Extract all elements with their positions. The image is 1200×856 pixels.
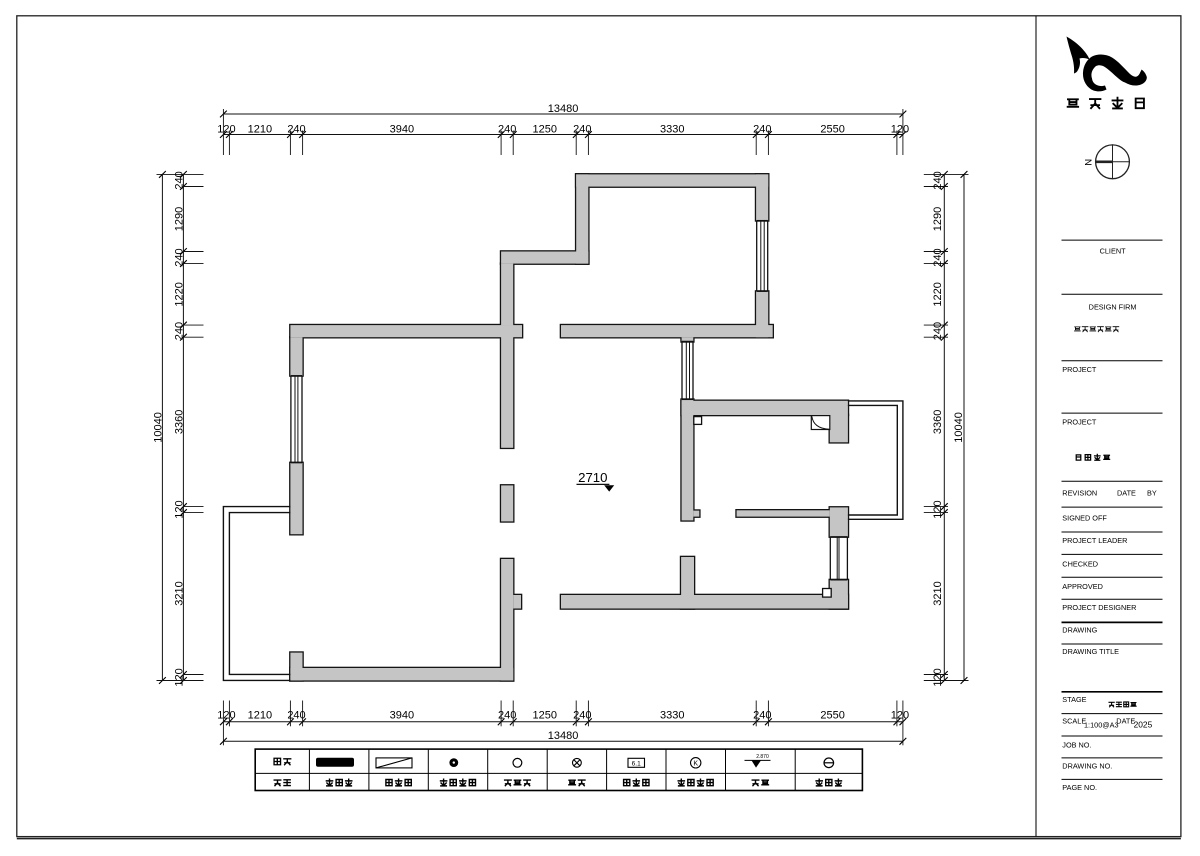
svg-text:120: 120 [217,123,235,135]
svg-text:1250: 1250 [533,710,557,722]
svg-text:120: 120 [891,710,909,722]
svg-text:240: 240 [287,710,305,722]
svg-text:1250: 1250 [533,123,557,135]
svg-text:DRAWING: DRAWING [1062,626,1097,635]
svg-text:DESIGN FIRM: DESIGN FIRM [1089,302,1137,311]
svg-text:CLIENT: CLIENT [1100,247,1126,256]
svg-text:120: 120 [932,500,944,518]
svg-text:240: 240 [173,171,185,189]
svg-text:1210: 1210 [248,123,272,135]
svg-text:1290: 1290 [173,207,185,231]
svg-text:3330: 3330 [660,123,684,135]
svg-text:6.1: 6.1 [632,760,641,767]
svg-text:240: 240 [573,710,591,722]
svg-text:10040: 10040 [953,412,965,443]
svg-text:PROJECT DESIGNER: PROJECT DESIGNER [1062,603,1136,612]
svg-text:13480: 13480 [548,730,579,742]
svg-text:SIGNED OFF: SIGNED OFF [1062,514,1107,523]
svg-text:STAGE: STAGE [1062,695,1086,704]
svg-text:240: 240 [932,171,944,189]
svg-text:PROJECT LEADER: PROJECT LEADER [1062,536,1127,545]
svg-text:3940: 3940 [390,710,414,722]
svg-text:DRAWING NO.: DRAWING NO. [1062,761,1112,770]
svg-text:10040: 10040 [152,412,164,443]
svg-text:3360: 3360 [932,410,944,434]
svg-text:1220: 1220 [173,282,185,306]
svg-text:120: 120 [173,500,185,518]
svg-text:APPROVED: APPROVED [1062,582,1103,591]
svg-text:240: 240 [173,248,185,266]
svg-text:2550: 2550 [820,123,844,135]
svg-text:120: 120 [932,668,944,686]
svg-text:120: 120 [891,123,909,135]
svg-text:CHECKED: CHECKED [1062,559,1098,568]
svg-text:1290: 1290 [932,207,944,231]
svg-text:240: 240 [287,123,305,135]
svg-text:PAGE NO.: PAGE NO. [1062,783,1097,792]
svg-text:240: 240 [753,710,771,722]
svg-text:240: 240 [573,123,591,135]
svg-text:DATE: DATE [1117,489,1136,498]
svg-text:240: 240 [498,710,516,722]
svg-text:240: 240 [498,123,516,135]
svg-text:DATE: DATE [1116,717,1135,726]
svg-text:2025: 2025 [1134,720,1153,730]
svg-text:2550: 2550 [820,710,844,722]
svg-text:13480: 13480 [548,103,579,115]
svg-text:2710: 2710 [578,470,607,485]
svg-text:PROJECT: PROJECT [1062,418,1097,427]
svg-text:SCALE: SCALE [1062,717,1086,726]
svg-text:240: 240 [173,322,185,340]
svg-text:PROJECT: PROJECT [1062,365,1097,374]
svg-text:2.870: 2.870 [756,754,769,760]
svg-text:1:100@A3: 1:100@A3 [1084,720,1119,729]
svg-text:3210: 3210 [173,581,185,605]
svg-text:3210: 3210 [932,581,944,605]
svg-text:1210: 1210 [248,710,272,722]
svg-text:3360: 3360 [173,410,185,434]
svg-text:DRAWING TITLE: DRAWING TITLE [1062,647,1119,656]
svg-text:JOB NO.: JOB NO. [1062,740,1091,749]
svg-text:120: 120 [173,668,185,686]
svg-text:BY: BY [1147,489,1157,498]
svg-text:240: 240 [932,322,944,340]
svg-text:1220: 1220 [932,282,944,306]
svg-text:120: 120 [217,710,235,722]
svg-text:3940: 3940 [390,123,414,135]
svg-text:240: 240 [932,248,944,266]
svg-text:3330: 3330 [660,710,684,722]
svg-text:240: 240 [753,123,771,135]
svg-text:K: K [693,761,698,768]
svg-text:REVISION: REVISION [1062,489,1097,498]
svg-text:N: N [1084,159,1095,166]
